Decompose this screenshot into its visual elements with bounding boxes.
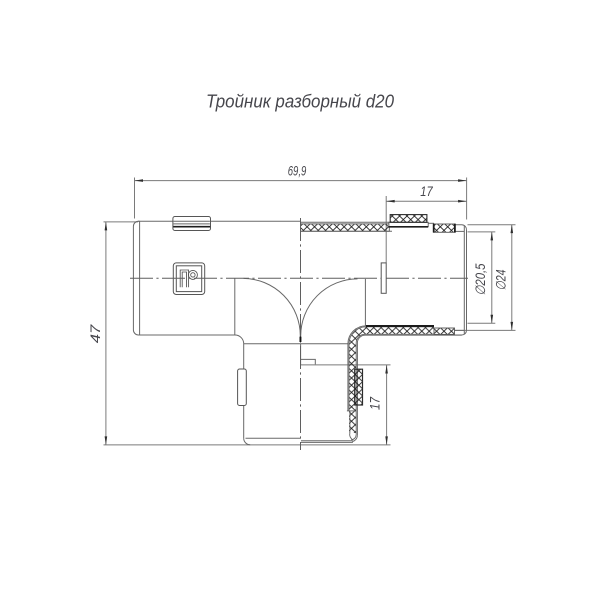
svg-text:∅20,5: ∅20,5 xyxy=(473,263,488,295)
svg-text:17: 17 xyxy=(367,396,383,410)
svg-text:17: 17 xyxy=(420,183,433,199)
svg-text:∅24: ∅24 xyxy=(494,270,509,291)
svg-text:47: 47 xyxy=(88,323,104,343)
svg-text:Тройник разборный d20: Тройник разборный d20 xyxy=(206,91,395,112)
svg-text:69,9: 69,9 xyxy=(288,164,307,179)
